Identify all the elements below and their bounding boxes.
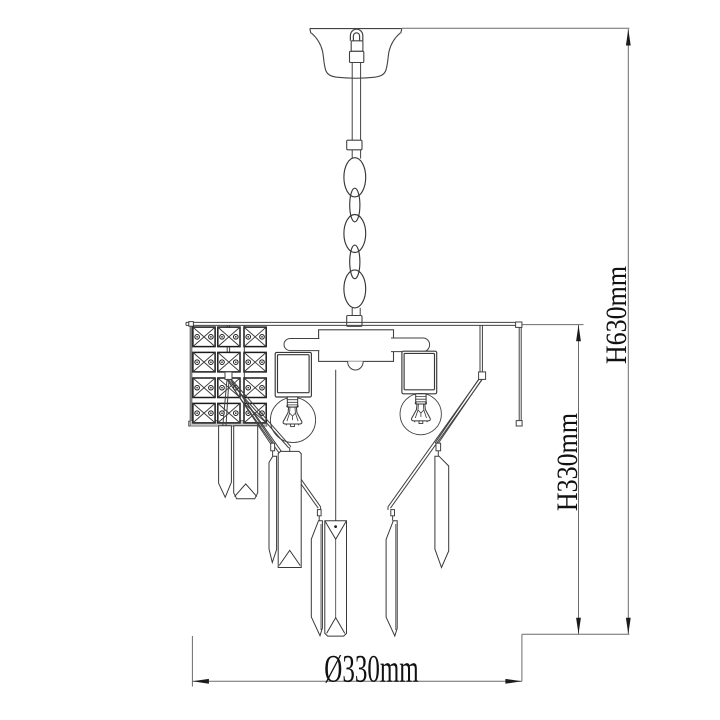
svg-text:H630mm: H630mm [601, 266, 634, 365]
svg-text:H330mm: H330mm [552, 413, 585, 512]
svg-text:Ø330mm: Ø330mm [324, 648, 418, 691]
